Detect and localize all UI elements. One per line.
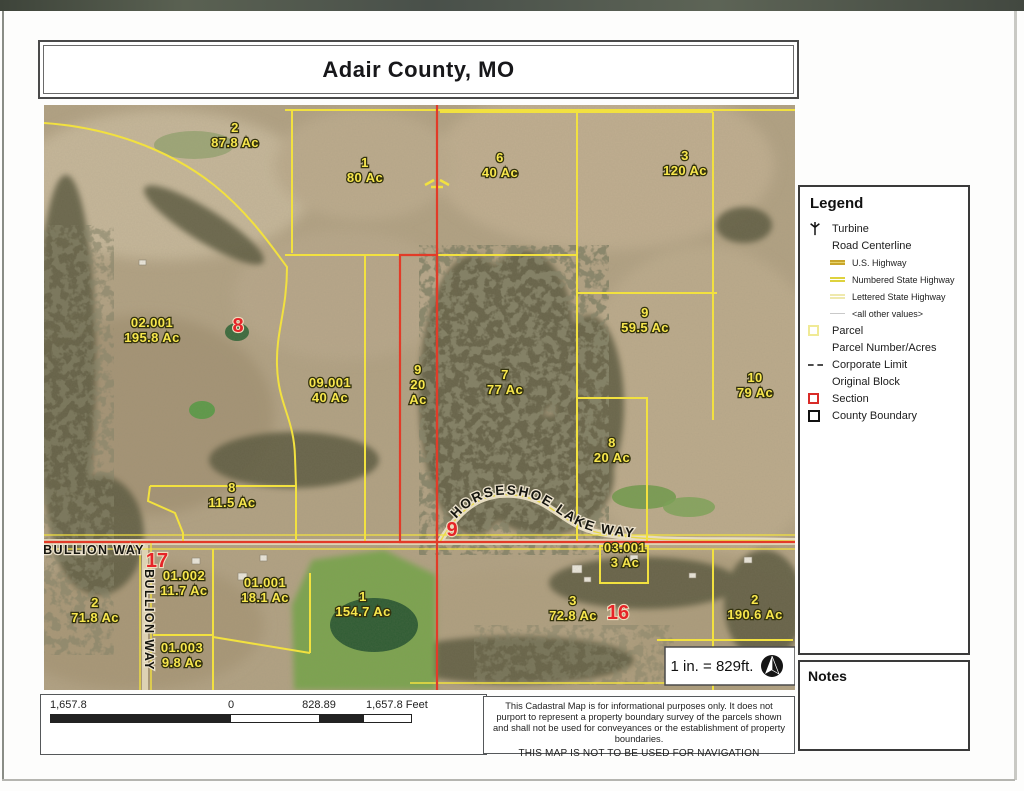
scan-edge-bottom [2,779,1015,781]
legend-heading: Legend [810,195,962,212]
north-arrow-icon [761,655,783,677]
scalebar-label-mid: 828.89 [302,699,336,711]
parcel-label: 02.001195.8 Ac [124,315,179,345]
lettered-state-highway-icon [830,294,852,299]
parcel-label: 01.0039.8 Ac [161,640,203,670]
aerial-map: 287.8 Ac180 Ac640 Ac3120 Ac02.001195.8 A… [44,105,795,690]
disclaimer-body: This Cadastral Map is for informational … [490,701,788,745]
section-number: 16 [607,602,629,624]
legend-item-label: U.S. Highway [852,258,907,268]
legend-list: TurbineRoad CenterlineU.S. HighwayNumber… [808,220,962,424]
title-box: Adair County, MO [38,40,799,99]
legend-item-label: Parcel Number/Acres [832,342,937,354]
cadastral-map-page: { "title": "Adair County, MO", "colors":… [0,0,1024,791]
disclaimer-warning: THIS MAP IS NOT TO BE USED FOR NAVIGATIO… [490,748,788,759]
scan-edge-right [1014,11,1017,780]
scale-note-box: 1 in. = 829ft. [665,647,795,685]
legend-item-label: Turbine [832,223,869,235]
legend-item: Numbered State Highway [808,271,962,288]
scalebar-bar [50,714,412,723]
section-icon [808,393,832,404]
legend-item-label: Road Centerline [832,240,912,252]
parcel-icon [808,325,832,336]
scalebar: 1,657.8 0 828.89 1,657.8 Feet [40,694,487,755]
legend-item: Section [808,390,962,407]
legend-item: Parcel [808,322,962,339]
parcel-label: 09.00140 Ac [309,375,351,405]
disclaimer: This Cadastral Map is for informational … [483,696,795,754]
none-icon [808,245,832,246]
none-icon [808,347,832,348]
legend-item: Parcel Number/Acres [808,339,962,356]
legend-item: U.S. Highway [808,254,962,271]
scalebar-label-zero: 0 [228,699,234,711]
numbered-state-highway-icon [830,277,852,282]
page-title: Adair County, MO [322,57,514,83]
road-label-bullion-way-vertical: BULLION WAY [142,569,156,671]
scalebar-label-left: 1,657.8 [50,699,87,711]
other-values-icon [830,313,852,314]
section-number: 8 [232,315,243,337]
legend-item-label: Corporate Limit [832,359,907,371]
legend-item-label: Original Block [832,376,900,388]
legend-item-label: <all other values> [852,309,923,319]
legend-item: Original Block [808,373,962,390]
scalebar-label-right: 1,657.8 Feet [366,699,428,711]
scan-edge-top [0,0,1024,11]
legend-item-label: Section [832,393,869,405]
legend-item: Turbine [808,220,962,237]
legend-item-label: Lettered State Highway [852,292,946,302]
parcel-label: 01.00211.7 Ac [160,568,207,598]
none-icon [808,381,832,382]
section-number: 9 [446,519,457,541]
turbine-icon [808,222,832,236]
us-highway-icon [830,260,852,265]
county-boundary-icon [808,410,832,422]
legend-item: Corporate Limit [808,356,962,373]
map-canvas: 287.8 Ac180 Ac640 Ac3120 Ac02.001195.8 A… [44,105,795,690]
notes-heading: Notes [808,668,960,684]
legend-item: Road Centerline [808,237,962,254]
legend: Legend TurbineRoad CenterlineU.S. Highwa… [798,185,970,655]
legend-item-label: Numbered State Highway [852,275,955,285]
scan-edge-left [2,11,4,781]
parcel-label: 01.00118.1 Ac [241,575,289,605]
legend-item-label: Parcel [832,325,863,337]
road-label-bullion-way: BULLION WAY [44,543,145,557]
legend-item: County Boundary [808,407,962,424]
legend-item: Lettered State Highway [808,288,962,305]
notes-box: Notes [798,660,970,751]
scale-note: 1 in. = 829ft. [671,658,754,675]
legend-item: <all other values> [808,305,962,322]
corporate-limit-icon [808,364,832,366]
scanned-sheet: Adair County, MO [0,0,1024,791]
legend-item-label: County Boundary [832,410,917,422]
